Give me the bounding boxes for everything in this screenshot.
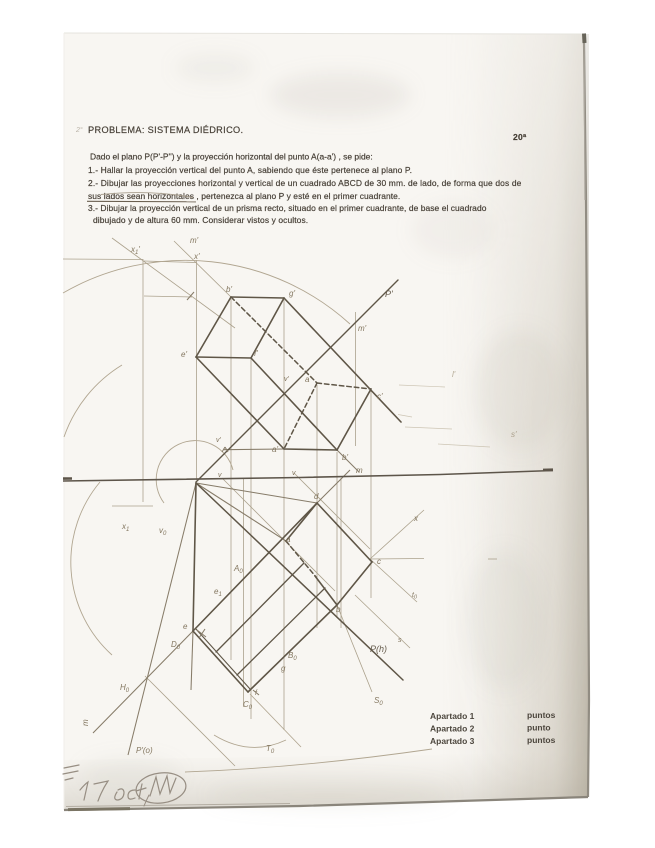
svg-text:e: e (183, 622, 188, 631)
svg-text:Dado el plano P(P'-P'') y la p: Dado el plano P(P'-P'') y la proyección … (90, 152, 373, 162)
svg-text:1.- Hallar la proyección verti: 1.- Hallar la proyección vertical del pu… (88, 165, 412, 175)
svg-text:Apartado 2: Apartado 2 (430, 724, 475, 734)
svg-text:v: v (218, 472, 222, 479)
svg-text:v': v' (284, 376, 290, 383)
svg-text:e': e' (181, 350, 187, 359)
svg-text:f': f' (254, 349, 258, 358)
svg-text:punto: punto (527, 723, 551, 733)
svg-text:v': v' (216, 437, 222, 444)
svg-text:g': g' (289, 289, 295, 298)
svg-text:c: c (377, 557, 381, 566)
svg-text:3.- Dibujar la proyección vert: 3.- Dibujar la proyección vertical de un… (88, 203, 487, 213)
svg-text:v: v (292, 470, 296, 477)
svg-text:d: d (314, 492, 319, 501)
svg-text:Apartado 3: Apartado 3 (430, 736, 475, 746)
svg-text:s: s (398, 637, 402, 644)
svg-text:s': s' (511, 430, 517, 439)
svg-text:b: b (336, 605, 341, 614)
svg-text:20ª: 20ª (513, 132, 527, 142)
svg-text:l': l' (452, 370, 456, 379)
svg-text:2.- Dibujar las proyecciones h: 2.- Dibujar las proyecciones horizontal … (88, 178, 522, 188)
svg-text:m': m' (190, 236, 199, 245)
svg-text:Apartado 1: Apartado 1 (430, 711, 475, 721)
svg-text:PROBLEMA: SISTEMA DIÉDRICO.: PROBLEMA: SISTEMA DIÉDRICO. (88, 125, 243, 135)
svg-text:puntos: puntos (527, 710, 556, 720)
svg-text:a: a (286, 535, 291, 544)
svg-text:m': m' (358, 324, 367, 333)
svg-text:x': x' (193, 252, 200, 261)
svg-text:2°: 2° (75, 126, 83, 134)
svg-text:dibujado y de altura 60 mm. C: dibujado y de altura 60 mm. Considerar v… (93, 215, 308, 225)
svg-text:b': b' (342, 453, 348, 462)
svg-text:c': c' (377, 392, 383, 401)
svg-text:a': a' (305, 375, 311, 384)
svg-text:P'(o): P'(o) (136, 746, 153, 755)
svg-text:m: m (356, 466, 363, 475)
svg-text:g: g (281, 664, 286, 673)
svg-text:m: m (81, 719, 90, 726)
svg-text:puntos: puntos (527, 735, 556, 745)
svg-text:b': b' (226, 285, 232, 294)
svg-text:P': P' (385, 289, 393, 299)
svg-text:a': a' (272, 445, 278, 454)
svg-text:P(h): P(h) (370, 644, 387, 654)
